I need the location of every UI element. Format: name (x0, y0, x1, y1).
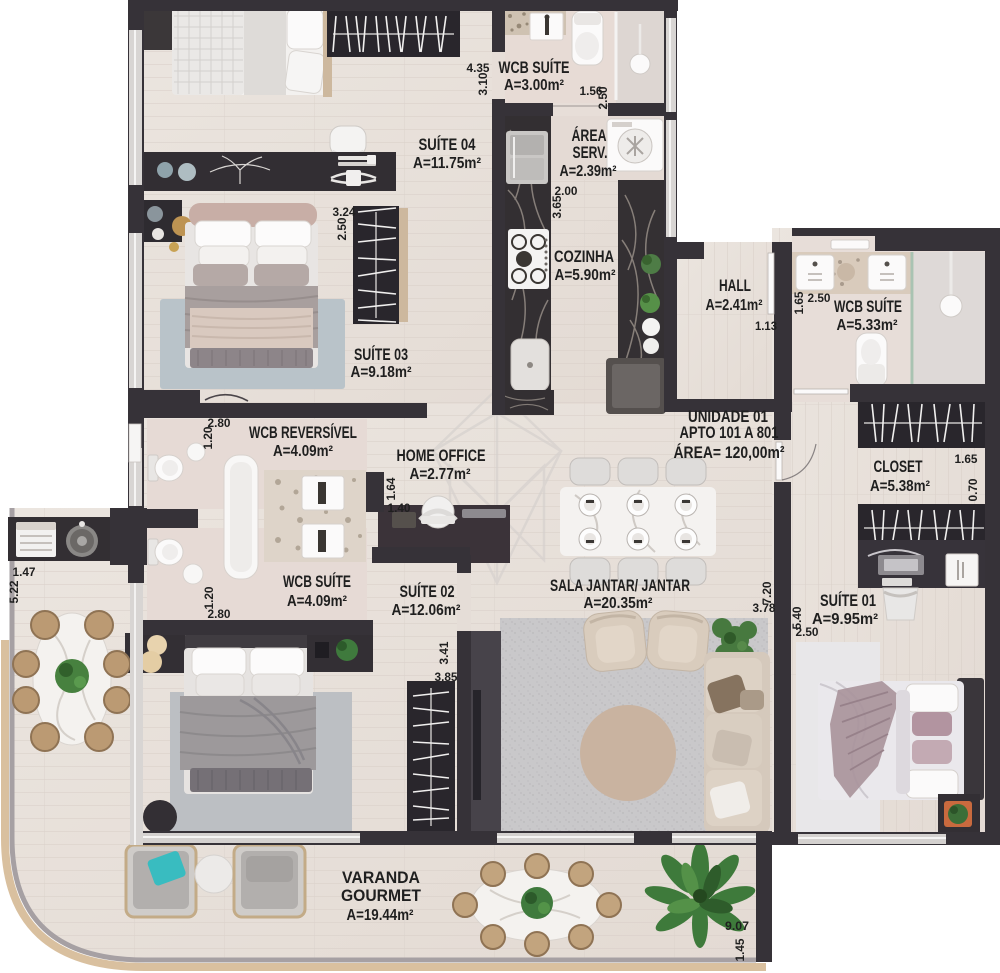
svg-text:SUÍTE 04: SUÍTE 04 (419, 135, 477, 154)
svg-text:ÁREA: ÁREA (572, 126, 607, 145)
svg-text:SUÍTE 03: SUÍTE 03 (354, 345, 408, 364)
svg-text:9.07: 9.07 (725, 919, 749, 933)
svg-text:3.10: 3.10 (476, 72, 490, 95)
svg-text:HOME OFFICE: HOME OFFICE (397, 447, 486, 465)
svg-text:2.50: 2.50 (808, 291, 831, 305)
svg-text:A=4.09m²: A=4.09m² (273, 443, 333, 460)
svg-text:A=5.38m²: A=5.38m² (870, 478, 930, 495)
svg-text:A=12.06m²: A=12.06m² (392, 602, 461, 619)
svg-text:A=5.90m²: A=5.90m² (555, 267, 616, 284)
svg-text:SUÍTE 02: SUÍTE 02 (400, 582, 455, 601)
svg-text:1.65: 1.65 (792, 291, 806, 314)
svg-text:CLOSET: CLOSET (874, 458, 923, 476)
svg-text:0.70: 0.70 (966, 478, 980, 501)
svg-text:2.50: 2.50 (596, 86, 610, 109)
svg-text:3.24: 3.24 (333, 205, 356, 219)
svg-text:COZINHA: COZINHA (554, 248, 614, 266)
svg-text:5.22: 5.22 (7, 580, 21, 603)
svg-text:1.40: 1.40 (388, 501, 411, 515)
svg-text:3.78: 3.78 (753, 601, 776, 615)
svg-text:WCB SUÍTE: WCB SUÍTE (499, 58, 570, 77)
svg-text:SALA JANTAR/ JANTAR: SALA JANTAR/ JANTAR (550, 577, 690, 595)
svg-text:1.64: 1.64 (384, 477, 398, 500)
svg-text:A=3.00m²: A=3.00m² (504, 77, 564, 94)
svg-text:SERV.: SERV. (573, 144, 608, 162)
svg-text:APTO 101 A 801: APTO 101 A 801 (680, 424, 779, 442)
svg-text:1.20: 1.20 (202, 586, 216, 609)
svg-text:1.13: 1.13 (755, 319, 777, 333)
svg-text:A=2.41m²: A=2.41m² (706, 297, 763, 314)
svg-text:SUÍTE 01: SUÍTE 01 (820, 591, 876, 610)
svg-text:A=2.77m²: A=2.77m² (410, 466, 471, 483)
svg-text:WCB SUÍTE: WCB SUÍTE (283, 572, 351, 591)
svg-text:2.80: 2.80 (208, 607, 231, 621)
svg-text:ÁREA= 120,00m²: ÁREA= 120,00m² (674, 443, 785, 462)
svg-text:1.45: 1.45 (733, 938, 747, 961)
svg-text:1.47: 1.47 (13, 565, 36, 579)
svg-text:A=20.35m²: A=20.35m² (584, 595, 653, 612)
svg-text:A=4.09m²: A=4.09m² (287, 593, 347, 610)
svg-text:1.65: 1.65 (955, 452, 978, 466)
svg-text:VARANDA: VARANDA (342, 869, 420, 887)
svg-text:A=9.18m²: A=9.18m² (351, 364, 412, 381)
svg-text:A=11.75m²: A=11.75m² (413, 155, 481, 172)
svg-text:A=19.44m²: A=19.44m² (347, 907, 414, 924)
svg-text:WCB SUÍTE: WCB SUÍTE (834, 297, 902, 316)
svg-text:A=9.95m²: A=9.95m² (812, 611, 878, 628)
svg-text:3.85: 3.85 (435, 670, 458, 684)
svg-text:3.41: 3.41 (437, 641, 451, 664)
svg-text:3.65: 3.65 (550, 195, 564, 218)
svg-text:2.50: 2.50 (796, 625, 819, 639)
svg-text:2.50: 2.50 (335, 217, 349, 240)
svg-text:GOURMET: GOURMET (341, 887, 421, 905)
svg-text:A=5.33m²: A=5.33m² (837, 317, 898, 334)
svg-text:WCB REVERSÍVEL: WCB REVERSÍVEL (249, 423, 357, 442)
svg-text:A=2.39m²: A=2.39m² (560, 163, 617, 180)
svg-text:1.20: 1.20 (201, 426, 215, 449)
svg-text:HALL: HALL (719, 277, 751, 295)
